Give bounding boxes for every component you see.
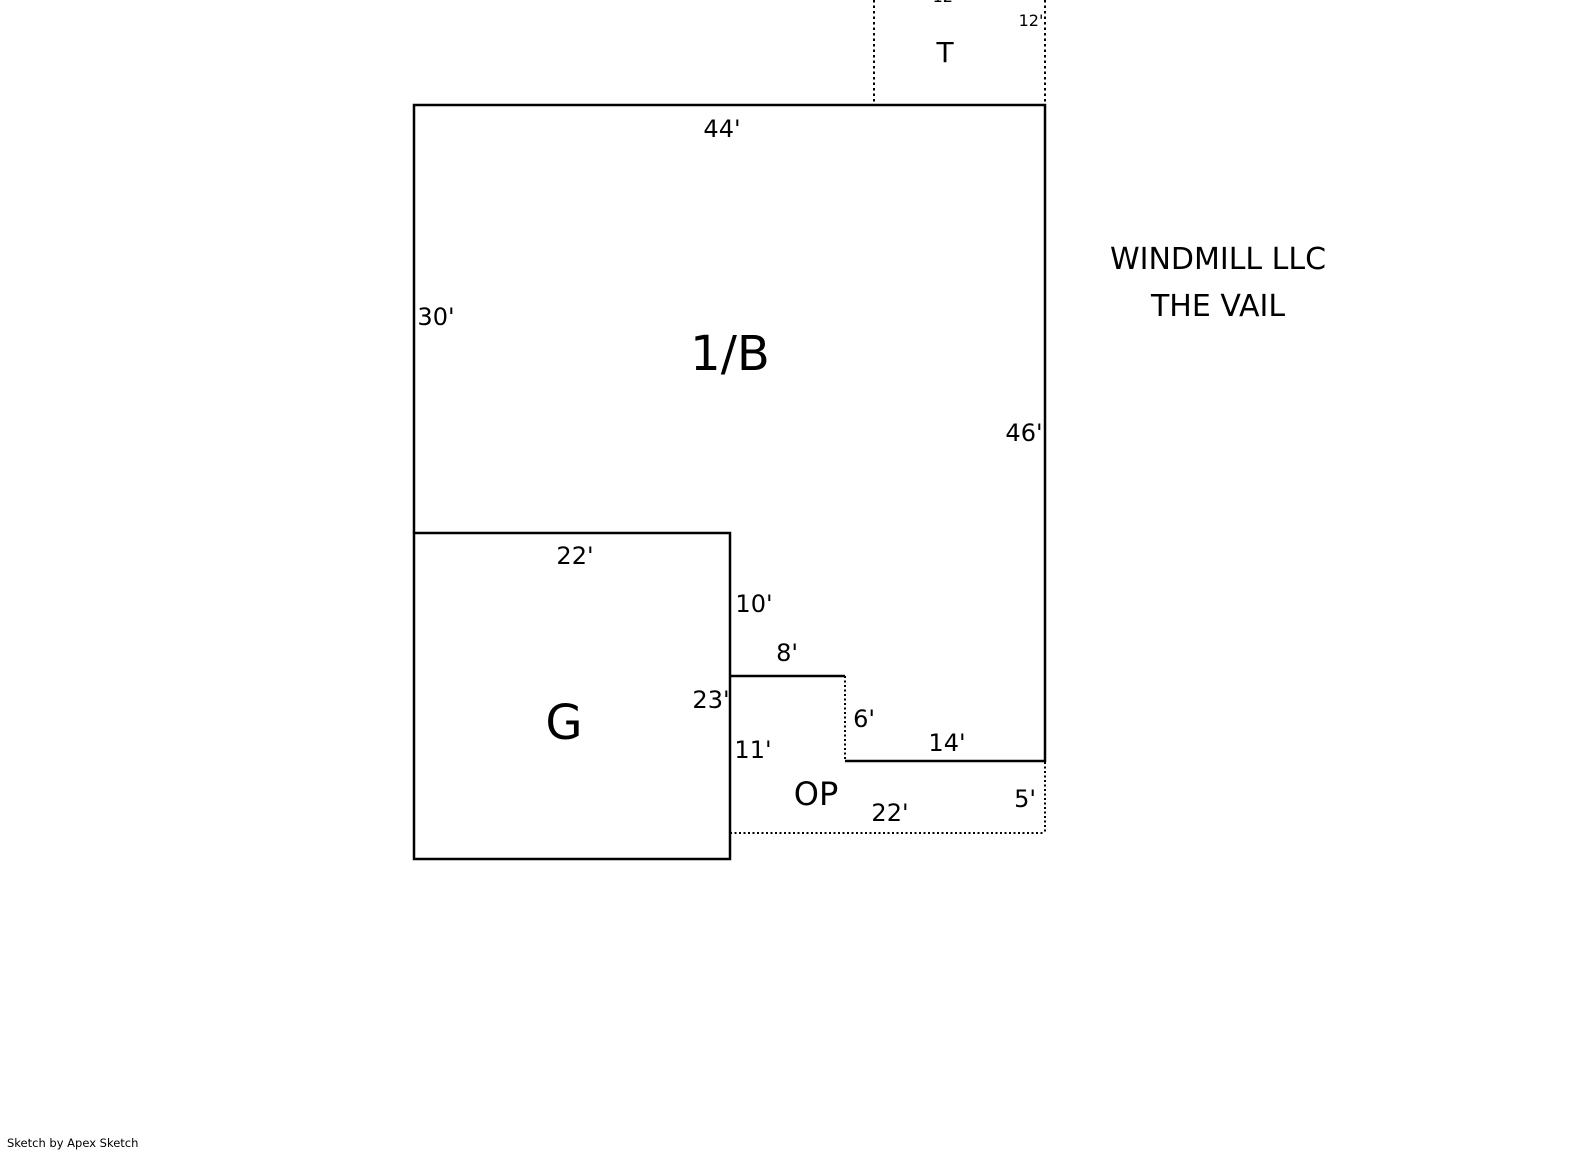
area-label-main: 1/B	[690, 330, 770, 378]
client-name-text: WINDMILL LLC	[1110, 245, 1326, 275]
dim-open-porch-right: 5'	[1014, 787, 1036, 811]
floorplan-canvas	[0, 0, 1585, 1163]
dim-open-porch-bottom: 22'	[871, 801, 908, 825]
dim-garage-right-upper: 10'	[735, 592, 772, 616]
dim-step-side: 6'	[853, 707, 875, 731]
dim-t-top-partial-clipped: 12'	[933, 0, 958, 5]
dim-bottom-right: 14'	[928, 731, 965, 755]
dim-main-left: 30'	[417, 305, 454, 329]
area-label-open-porch: OP	[794, 778, 838, 810]
dim-garage-right-lower: 11'	[734, 738, 771, 762]
dim-t-right: 12'	[1019, 13, 1044, 29]
dim-garage-top: 22'	[556, 544, 593, 568]
dim-main-top: 44'	[703, 117, 740, 141]
sketch-credit-text: Sketch by Apex Sketch	[7, 1136, 138, 1150]
area-label-garage: G	[545, 699, 582, 747]
floorplan-page: 1/B G OP T 44' 30' 46' 12' 22' 10' 8' 23…	[0, 0, 1585, 1163]
area-label-top-section: T	[936, 39, 953, 67]
property-name-text: THE VAIL	[1151, 292, 1285, 322]
dim-garage-right: 23'	[692, 688, 729, 712]
dim-main-right: 46'	[1005, 421, 1042, 445]
dim-step-top: 8'	[776, 641, 798, 665]
